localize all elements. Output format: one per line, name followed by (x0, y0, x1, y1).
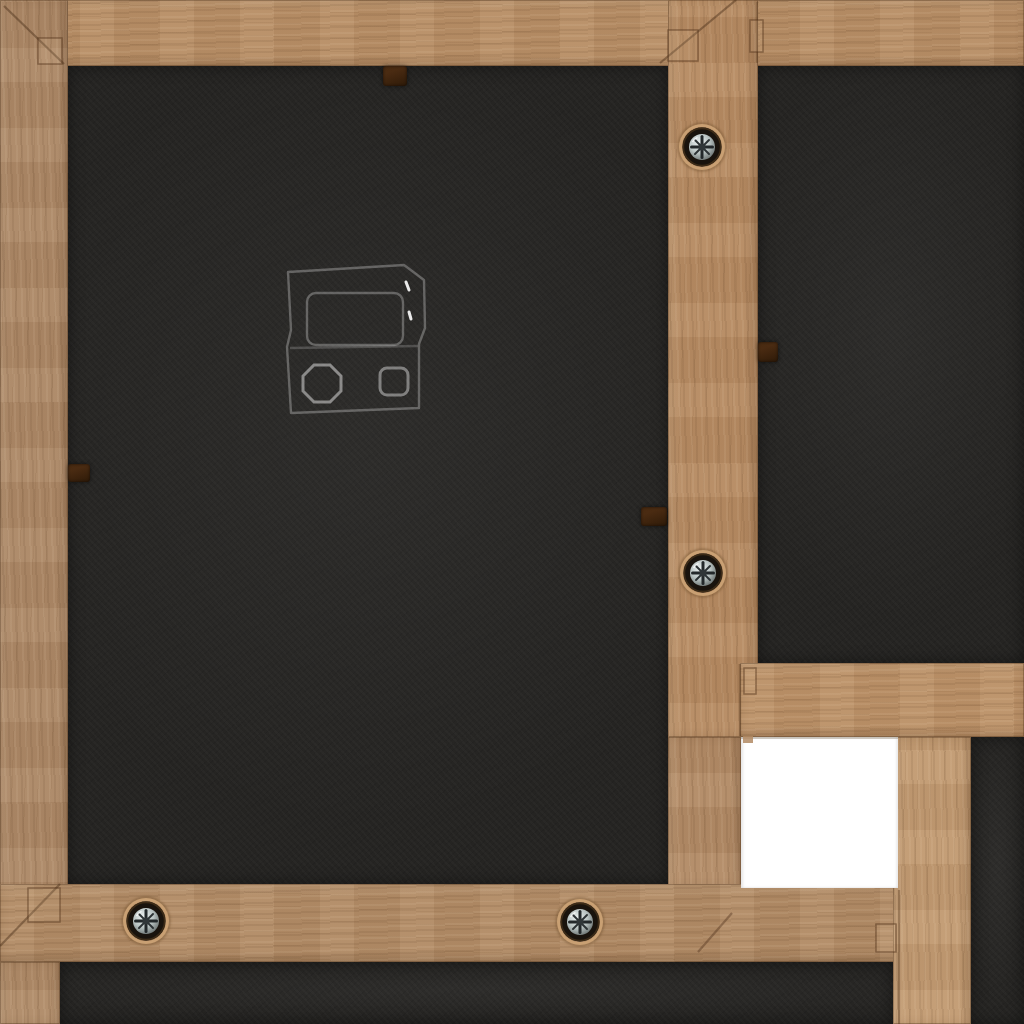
screw-icon (126, 901, 166, 941)
bracket-hole-left (303, 365, 341, 402)
bracket-hole-right (380, 368, 408, 395)
screw-bottom-rail-left (126, 901, 166, 941)
screw-center-rail-top (682, 127, 722, 167)
glazier-point-center-right (758, 342, 778, 362)
right-edge-backing-strip (971, 737, 1024, 1024)
glazier-point-left (68, 464, 90, 482)
left-backing-panel (68, 66, 668, 884)
stage (0, 0, 1024, 1024)
bottom-left-vertical-rail (0, 962, 60, 1024)
hanger-bracket (278, 260, 430, 420)
screw-icon (683, 553, 723, 593)
bracket-hook-slot (307, 293, 403, 345)
center-vertical-rail (668, 0, 758, 737)
screw-icon (560, 902, 600, 942)
right-horizontal-rail (740, 663, 1024, 737)
screw-icon (682, 127, 722, 167)
glazier-point-center-left (641, 507, 667, 526)
bottom-backing-panel (60, 962, 893, 1024)
screw-center-rail-middle (683, 553, 723, 593)
empty-white-opening (741, 737, 898, 888)
left-rail (0, 0, 68, 962)
screw-bottom-rail-right (560, 902, 600, 942)
bracket-divider (290, 346, 418, 348)
frame-back-photo: Back of a light-brown wooden collage pic… (0, 0, 1024, 1024)
right-vertical-rail (893, 737, 971, 1024)
top-right-backing-panel (758, 66, 1024, 663)
top-rail (0, 0, 1024, 66)
glazier-point-top (383, 66, 407, 86)
center-vertical-rail-lower (668, 737, 741, 887)
bracket-highlight (406, 282, 411, 319)
